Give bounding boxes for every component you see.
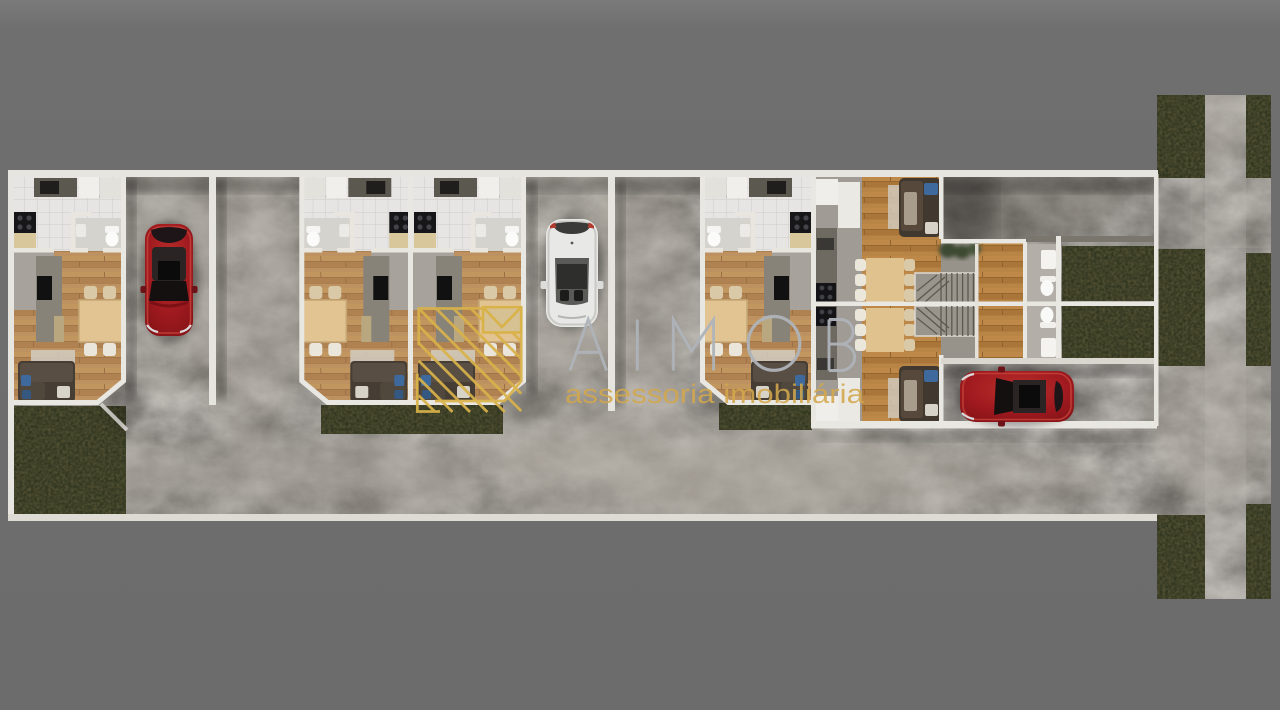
- svg-text:assessoria imobiliária: assessoria imobiliária: [565, 379, 864, 409]
